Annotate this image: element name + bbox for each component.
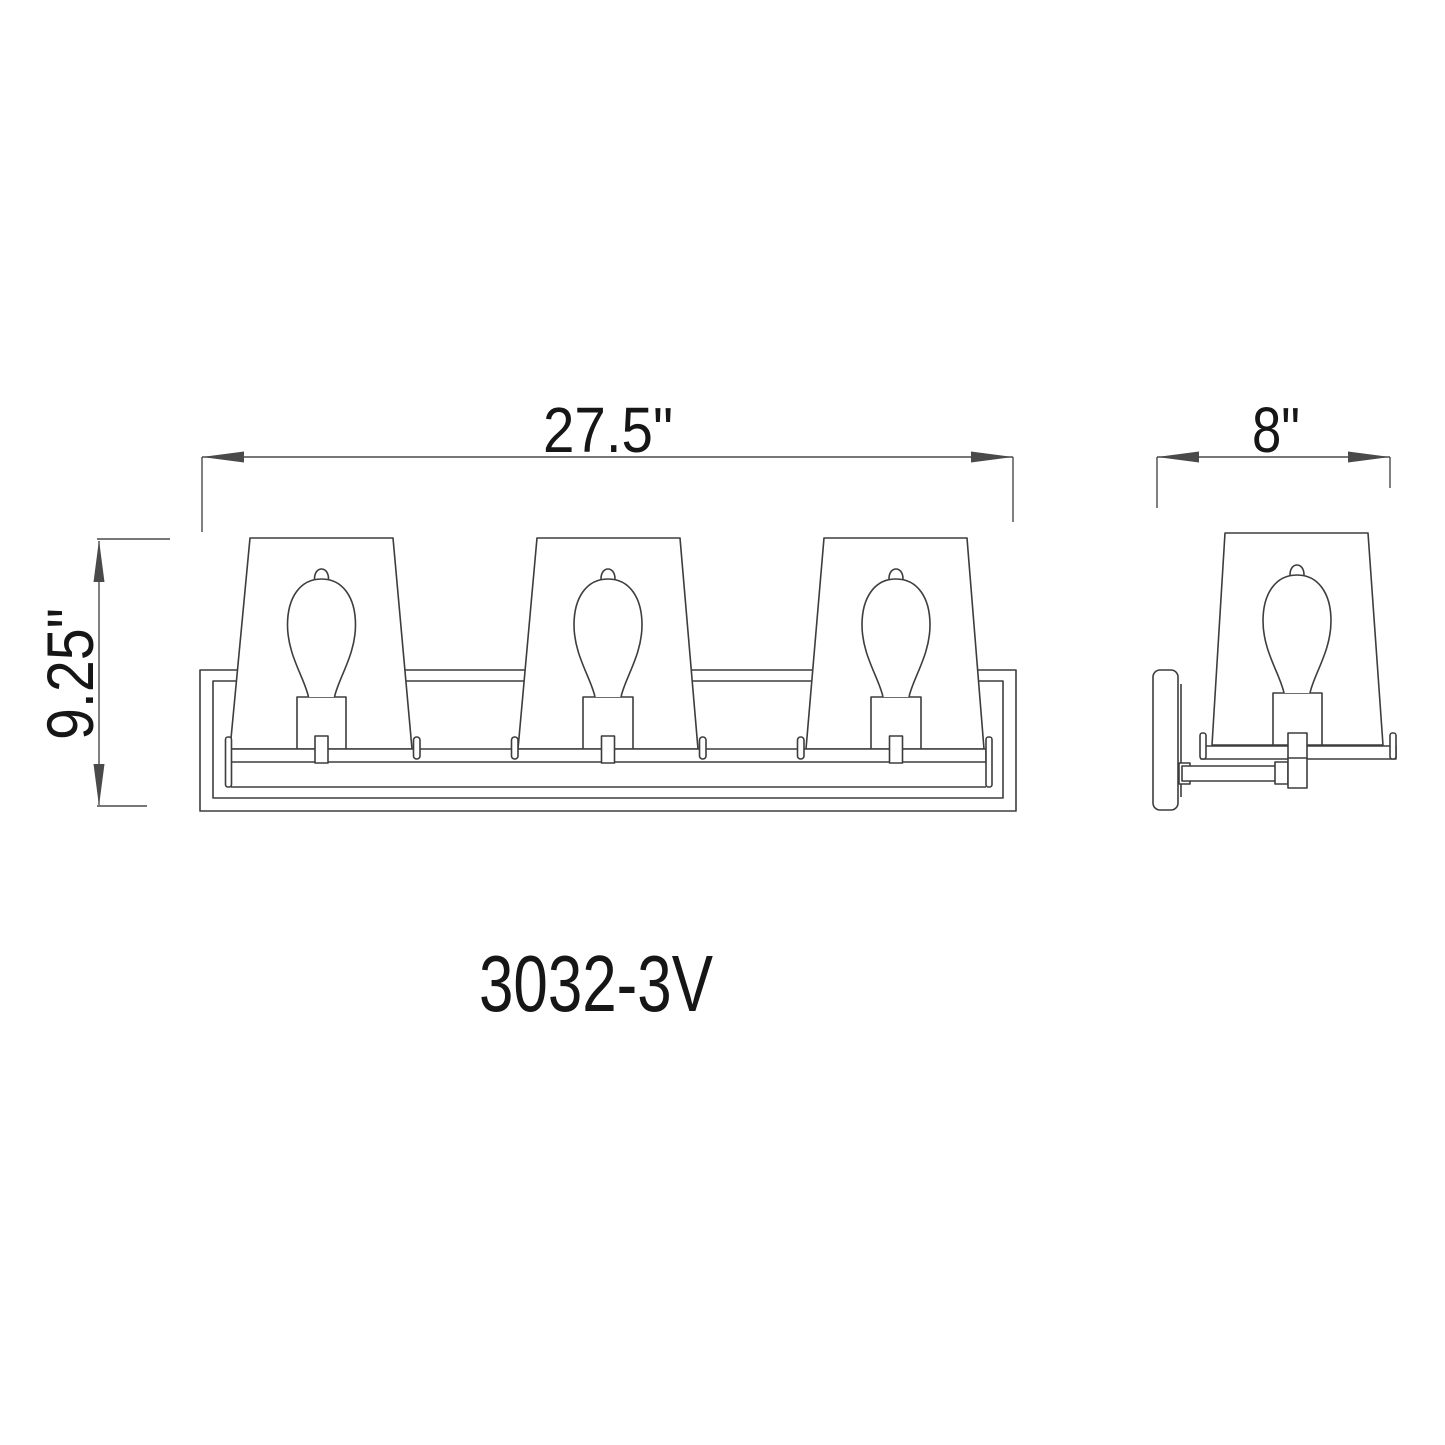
thumbscrew-knob-3 xyxy=(890,736,903,763)
depth-dimension-label: 8" xyxy=(1252,394,1300,466)
model-number-label: 3032-3V xyxy=(479,939,713,1028)
arrowhead-up-icon xyxy=(94,540,105,582)
wall-plate xyxy=(1153,670,1178,810)
height-dimension-label: 9.25" xyxy=(33,608,107,740)
arrowhead-left-icon xyxy=(202,452,244,463)
shade-tab xyxy=(414,737,421,759)
width-dimension-label: 27.5" xyxy=(543,394,673,466)
shade-tab xyxy=(512,737,519,759)
arm-connector xyxy=(1275,762,1288,784)
tray-end-lip-left xyxy=(226,737,232,787)
arrowhead-left-icon xyxy=(1157,452,1199,463)
depth-dimension: 8" xyxy=(1157,394,1390,508)
tray-end-lip-left-side xyxy=(1200,733,1206,759)
drawing-sheet: 27.5" 9.25" 8" xyxy=(0,0,1445,1445)
technical-drawing-canvas: 27.5" 9.25" 8" xyxy=(0,0,1445,1445)
thumbscrew-knob-1 xyxy=(315,736,328,763)
shade-tab xyxy=(700,737,707,759)
arrowhead-right-icon xyxy=(971,452,1013,463)
front-view-drawing xyxy=(200,538,1016,811)
mounting-arm xyxy=(1182,766,1277,781)
arrowhead-right-icon xyxy=(1348,452,1390,463)
thumbscrew-knob-side xyxy=(1288,733,1307,759)
tray-end-lip-right xyxy=(986,737,992,787)
arrowhead-down-icon xyxy=(94,764,105,806)
thumbscrew-knob-2 xyxy=(602,736,615,763)
side-view-drawing xyxy=(1153,533,1396,810)
shade-tab xyxy=(798,737,805,759)
tray-end-lip-right-side xyxy=(1390,733,1396,759)
arm-finial-knob xyxy=(1288,758,1307,788)
width-dimension: 27.5" xyxy=(202,394,1013,532)
height-dimension: 9.25" xyxy=(33,539,170,806)
